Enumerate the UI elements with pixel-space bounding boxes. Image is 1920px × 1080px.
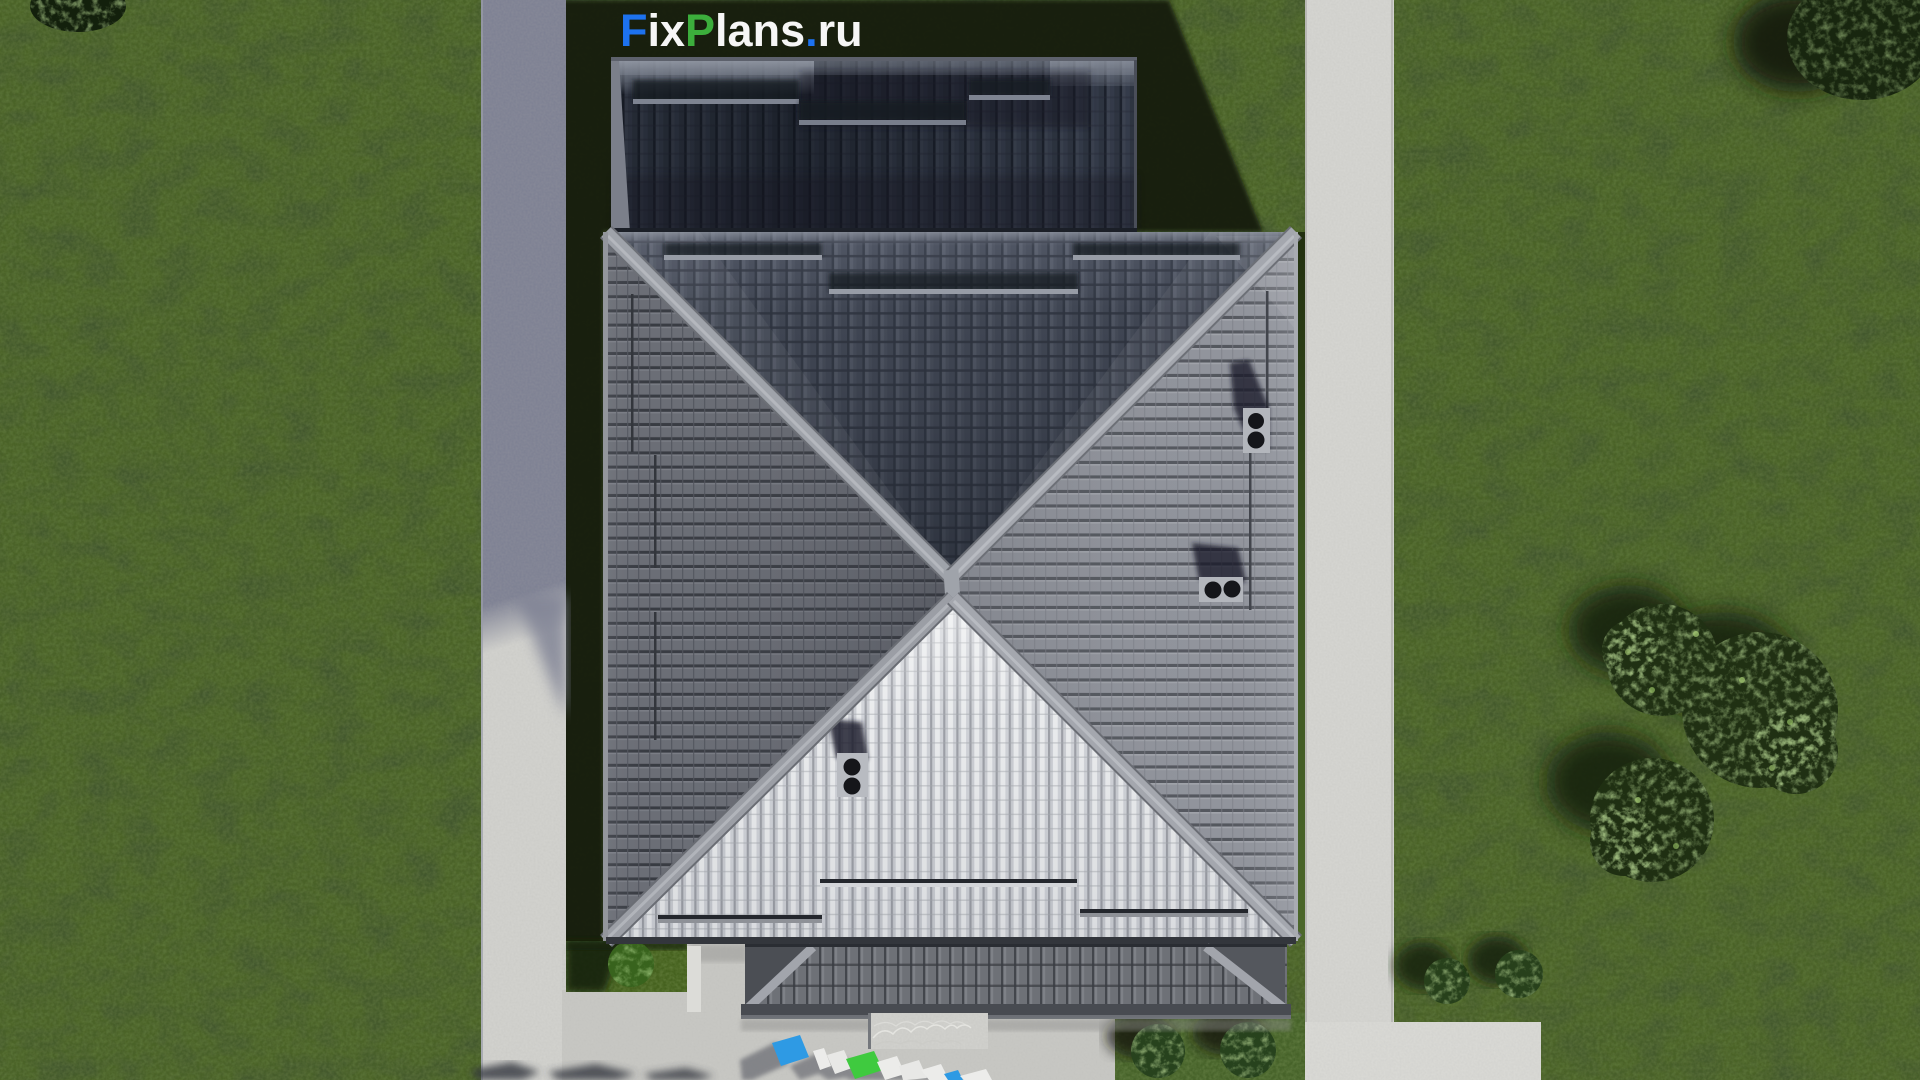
svg-text:FixPlans.ru: FixPlans.ru (620, 5, 863, 56)
